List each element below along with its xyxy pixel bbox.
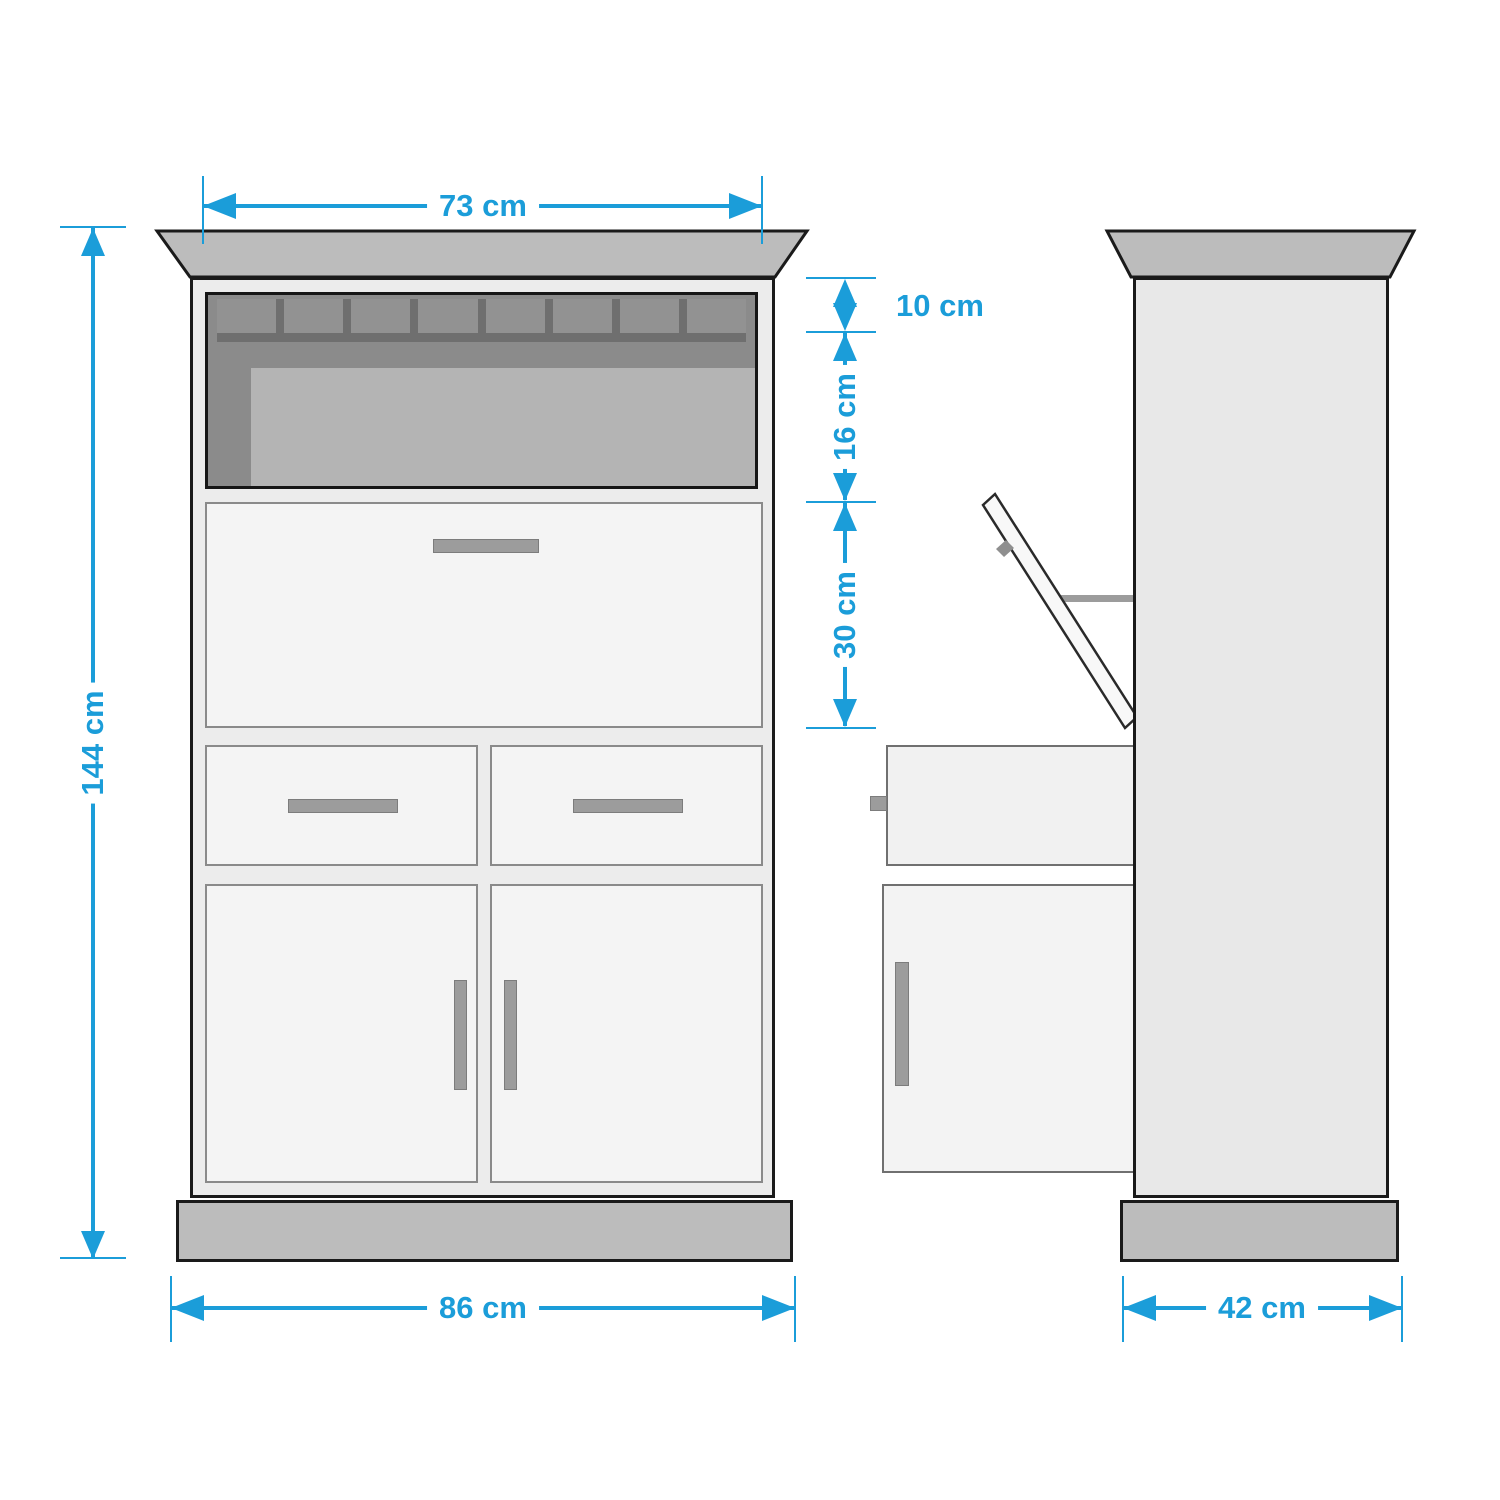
furniture-dimension-diagram: 73 cm 144 cm 10 cm 16 cm 30 cm <box>0 0 1500 1500</box>
front-crown-molding <box>157 231 807 277</box>
dim-label-base-width: 86 cm <box>427 1289 539 1327</box>
dim-label-top-width: 73 cm <box>427 187 539 225</box>
side-plinth-base <box>1120 1200 1399 1262</box>
side-crown-molding <box>1107 231 1414 277</box>
dim-label-shelf-lower: 16 cm <box>826 365 864 469</box>
dim-label-flap-height: 30 cm <box>826 563 864 667</box>
dim-label-shelf-upper: 10 cm <box>884 287 996 325</box>
dim-label-total-height: 144 cm <box>74 682 112 803</box>
dim-label-depth: 42 cm <box>1206 1289 1318 1327</box>
side-panel-body <box>1133 277 1389 1198</box>
open-flap-panel <box>983 494 1137 728</box>
